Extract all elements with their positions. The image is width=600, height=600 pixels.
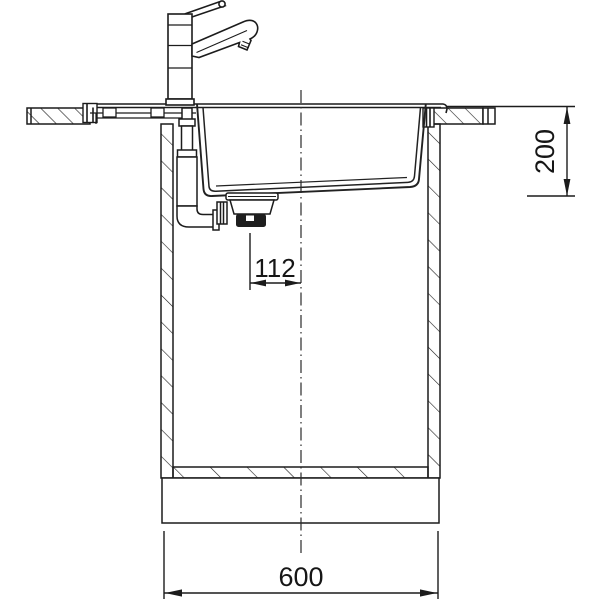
drain-inlet-flange [217, 202, 227, 224]
cabinet-left-wall [161, 124, 173, 478]
dimension-drain-offset: 112 [250, 233, 301, 290]
countertop-left [27, 108, 90, 124]
drawing-canvas: 200 112 600 [0, 0, 600, 600]
arrowhead-down [564, 179, 571, 196]
faucet-body [168, 14, 192, 99]
dimension-600-label: 600 [278, 562, 323, 592]
sink-rim [83, 104, 447, 128]
technical-drawing: 200 112 600 [0, 0, 600, 600]
arrowhead-right [420, 589, 437, 596]
overflow-elbow [177, 206, 216, 227]
faucet-base [166, 99, 194, 105]
dimension-112-label: 112 [254, 253, 295, 283]
dimension-200-label: 200 [530, 129, 560, 174]
drain-nut-notch [246, 216, 254, 222]
sink-basin [197, 104, 426, 196]
arrowhead-left [165, 589, 182, 596]
arrowhead-up [564, 107, 571, 124]
countertop-right [428, 108, 495, 124]
drain-assembly [217, 193, 278, 227]
cabinet-right-wall [428, 124, 440, 478]
strainer-body [230, 200, 274, 214]
faucet-spout [192, 20, 258, 57]
faucet [166, 1, 258, 105]
basin-far-bottom-edge [216, 178, 407, 187]
